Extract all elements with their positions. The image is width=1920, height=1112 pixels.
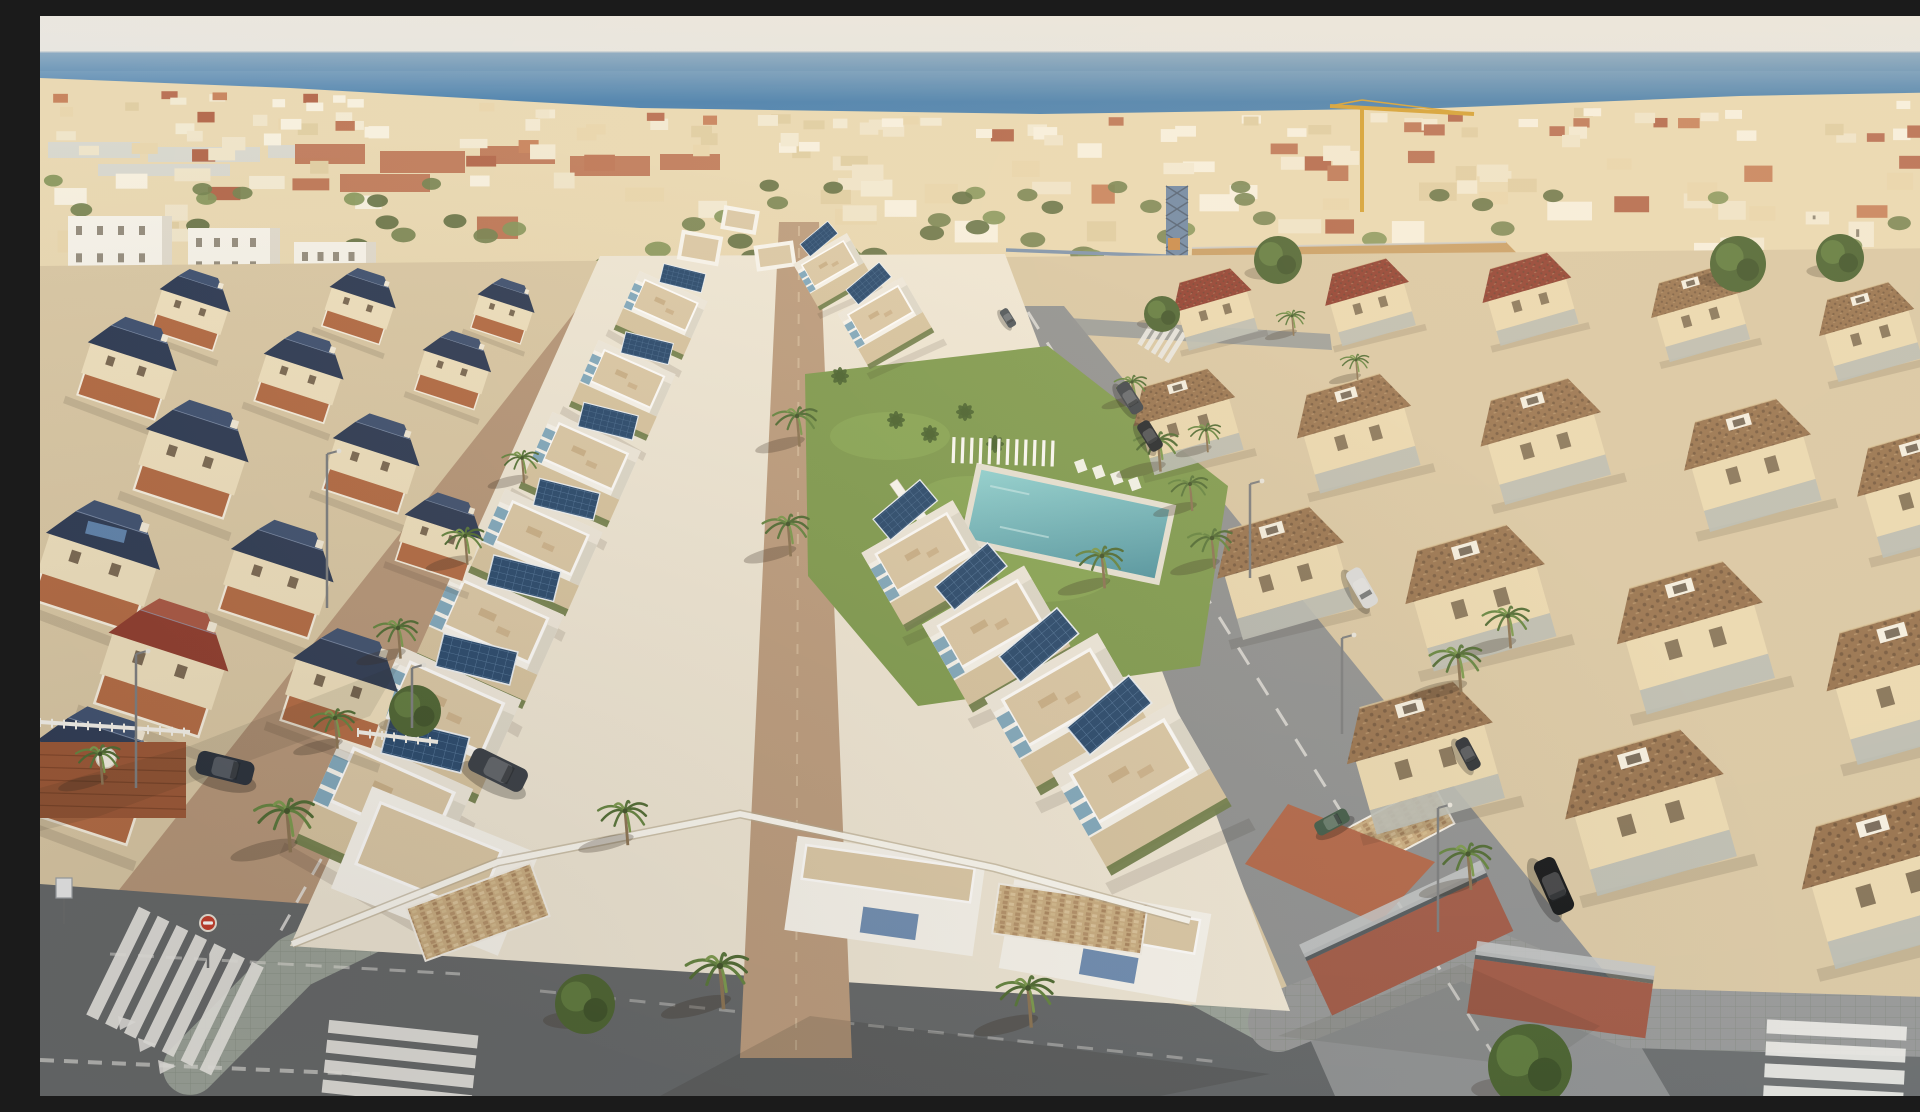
light-overlay-layer [40,16,1920,1096]
aerial-photo-stage: Aerial drone photo of a coastal Spanish … [40,16,1920,1096]
aerial-photo [40,16,1920,1096]
vignette-overlay [40,16,1920,1096]
